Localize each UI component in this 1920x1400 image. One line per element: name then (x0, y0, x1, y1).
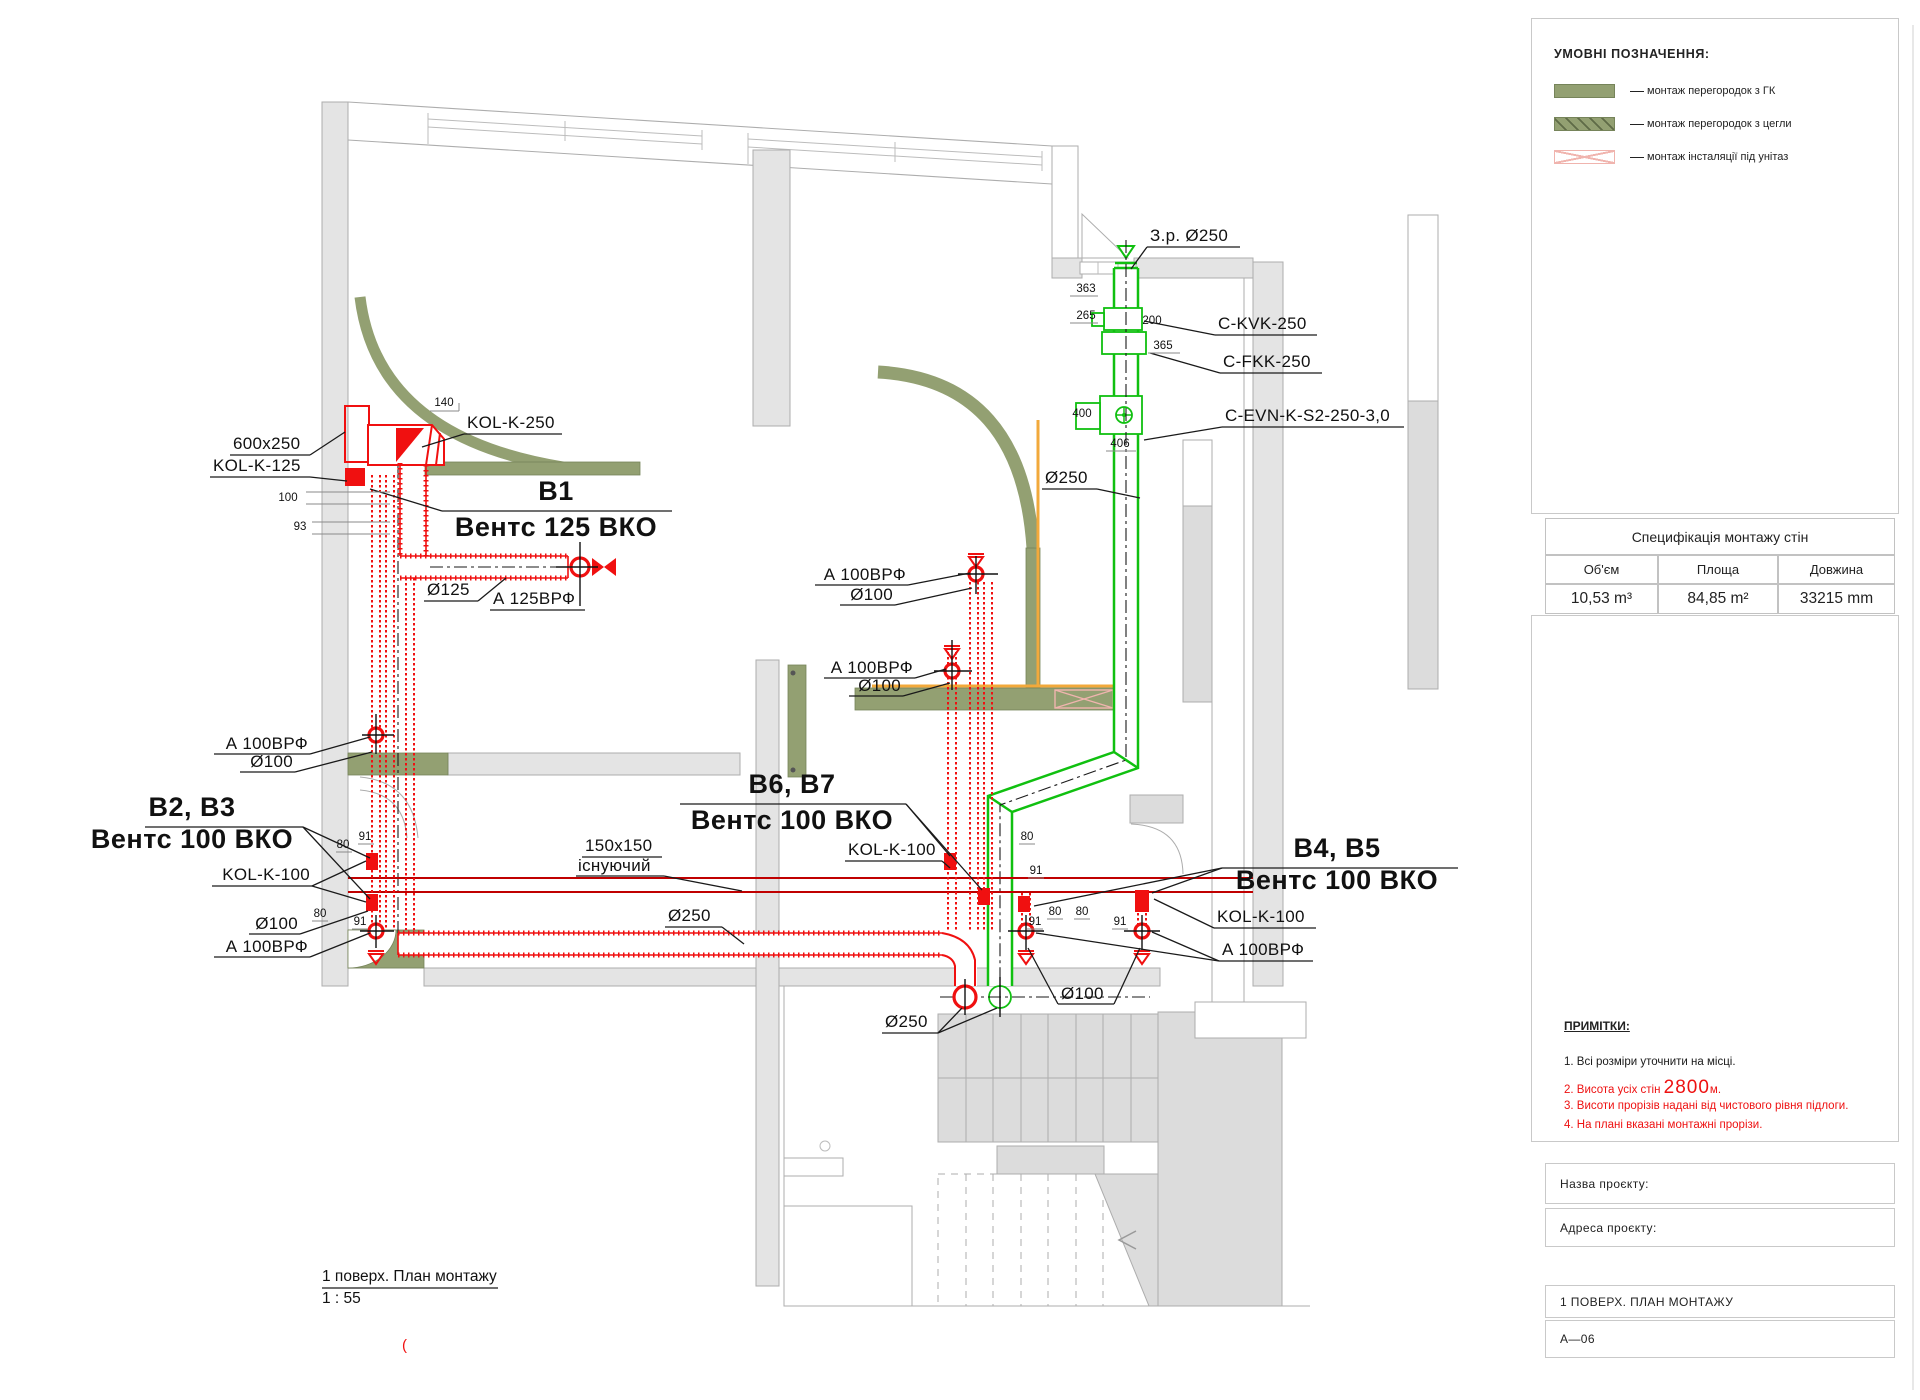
drawing-caption: 1 поверх. План монтажу (322, 1268, 497, 1285)
titleblock-project-name: Назва проєкту: (1545, 1163, 1895, 1204)
titleblock-sheet-code: А—06 (1545, 1320, 1895, 1358)
drawing-scale: 1 : 55 (322, 1290, 361, 1307)
label-a100vrf-left-top: А 100ВРФ (226, 734, 308, 753)
legend-item-brick: монтаж перегородок з цегли (1554, 117, 1884, 133)
note-3: 3. Висоти прорізів надані від чистового … (1564, 1100, 1848, 1112)
label-b67-subtitle: Вентс 100 ВКО (691, 805, 893, 835)
dim-400: 400 (1072, 408, 1091, 420)
legend-item-label: монтаж перегородок з цегли (1647, 118, 1792, 130)
fixture-shelf (784, 1158, 843, 1176)
staircase (784, 986, 1310, 1306)
dim-91-e: 91 (1114, 916, 1127, 928)
dim-80-d: 80 (1049, 906, 1062, 918)
grille-600x250 (345, 406, 369, 462)
spec-val-volume: 10,53 m³ (1545, 584, 1658, 614)
label-kol-k-100-mid: KOL-K-100 (848, 840, 936, 859)
legend-dash-icon (1630, 157, 1644, 158)
note-2-height-value: 2800 (1664, 1077, 1710, 1098)
swatch-toilet-installation (1554, 150, 1615, 164)
fkk-unit (1102, 332, 1146, 354)
label-c-fkk-250: C-FKK-250 (1223, 352, 1311, 371)
spec-col-length: Довжина (1778, 555, 1895, 584)
titleblock-sheet-title: 1 ПОВЕРХ. ПЛАН МОНТАЖУ (1545, 1285, 1895, 1318)
note-4: 4. На плані вказані монтажні прорізи. (1564, 1119, 1762, 1131)
spec-val-length: 33215 mm (1778, 584, 1895, 614)
label-d100-bottom: Ø100 (1061, 984, 1104, 1003)
label-d250-duct: Ø250 (668, 906, 711, 925)
dim-140: 140 (434, 397, 453, 409)
legend-item-gk: монтаж перегородок з ГК (1554, 84, 1884, 100)
swatch-partition-brick (1554, 117, 1615, 131)
label-b67-heading: В6, В7 (748, 769, 835, 799)
dim-200: 200 (1142, 315, 1161, 327)
dim-80-e: 80 (1076, 906, 1089, 918)
kvk-unit (1104, 308, 1142, 330)
spec-table-title: Специфікація монтажу стін (1545, 518, 1895, 555)
label-c-evn: C-EVN-K-S2-250-3,0 (1225, 406, 1390, 425)
spec-table: Специфікація монтажу стін Об'єм Площа До… (1545, 518, 1895, 614)
spec-col-volume: Об'єм (1545, 555, 1658, 584)
label-600x250: 600x250 (233, 434, 300, 453)
dim-80-b: 80 (314, 908, 327, 920)
dim-363: 363 (1076, 283, 1095, 295)
label-c-kvk-250: C-KVK-250 (1218, 314, 1307, 333)
label-a100vrf-mid1: А 100ВРФ (824, 565, 906, 584)
label-existing: існуючий (578, 856, 651, 875)
dim-91-c: 91 (1030, 865, 1043, 877)
green-supply-duct (988, 246, 1146, 1008)
dim-80-c: 80 (1021, 831, 1034, 843)
legend-item-label: монтаж перегородок з ГК (1647, 85, 1775, 97)
label-a100vrf-left-bottom: А 100ВРФ (226, 937, 308, 956)
dim-100: 100 (278, 492, 297, 504)
notes-box: ПРИМІТКИ: 1. Всі розміри уточнити на міс… (1531, 615, 1899, 1142)
label-d125: Ø125 (427, 580, 470, 599)
legend-title: УМОВНІ ПОЗНАЧЕННЯ: (1554, 47, 1710, 61)
titleblock-project-address: Адреса проєкту: (1545, 1208, 1895, 1247)
label-d100-left-top: Ø100 (250, 752, 293, 771)
note-1: 1. Всі розміри уточнити на місці. (1564, 1056, 1736, 1068)
legend-item-label: монтаж інсталяції під унітаз (1647, 151, 1788, 163)
legend-dash-icon (1630, 124, 1644, 125)
label-a100vrf-mid2: А 100ВРФ (831, 658, 913, 677)
dim-80-a: 80 (337, 839, 350, 851)
label-b1-heading: В1 (538, 476, 574, 506)
dim-93: 93 (294, 521, 307, 533)
legend-dash-icon (1630, 91, 1644, 92)
legend-box: УМОВНІ ПОЗНАЧЕННЯ: монтаж перегородок з … (1531, 18, 1899, 514)
spec-col-area: Площа (1658, 555, 1778, 584)
kol-k-125-mark (345, 468, 365, 486)
door-leaf (788, 665, 806, 777)
label-d100-mid1: Ø100 (850, 585, 893, 604)
label-kol-k-100-left: KOL-K-100 (222, 865, 310, 884)
dim-91-b: 91 (354, 916, 367, 928)
dim-406: 406 (1110, 438, 1129, 450)
label-d100-left-bottom: Ø100 (255, 914, 298, 933)
notes-title: ПРИМІТКИ: (1564, 1019, 1630, 1033)
label-b23-subtitle: Вентс 100 ВКО (91, 824, 293, 854)
label-d250-outlets: Ø250 (885, 1012, 928, 1031)
stray-mark: ( (402, 1337, 407, 1354)
spec-val-area: 84,85 m² (1658, 584, 1778, 614)
swatch-partition-gk (1554, 84, 1615, 98)
label-b1-subtitle: Вентс 125 ВКО (455, 512, 657, 542)
label-zr-d250: З.р. Ø250 (1150, 226, 1228, 245)
label-a100vrf-right: А 100ВРФ (1222, 940, 1304, 959)
fixture-circle (820, 1141, 830, 1151)
drawing-sheet: З.р. Ø250 C-KVK-250 C-FKK-250 C-EVN-K-S2… (0, 0, 1920, 1395)
label-d100-mid2: Ø100 (858, 676, 901, 695)
label-green-d250: Ø250 (1045, 468, 1088, 487)
note-2: 2. Висота усіх стін 2800м. (1564, 1077, 1721, 1099)
label-a125vrf: А 125ВРФ (493, 589, 575, 608)
fixture-cabinet (784, 1206, 912, 1306)
label-150x150: 150x150 (585, 836, 652, 855)
label-kol-k-250: KOL-K-250 (467, 413, 555, 432)
label-kol-k-100-right: KOL-K-100 (1217, 907, 1305, 926)
dim-91-a: 91 (359, 831, 372, 843)
dim-91-d: 91 (1029, 916, 1042, 928)
label-b23-heading: В2, В3 (148, 792, 235, 822)
label-b45-subtitle: Вентс 100 ВКО (1236, 865, 1438, 895)
label-b45-heading: В4, В5 (1293, 833, 1380, 863)
dim-265: 265 (1076, 310, 1095, 322)
label-kol-k-125: KOL-K-125 (213, 456, 301, 475)
dim-365: 365 (1153, 340, 1172, 352)
legend-item-toilet: монтаж інсталяції під унітаз (1554, 150, 1884, 166)
